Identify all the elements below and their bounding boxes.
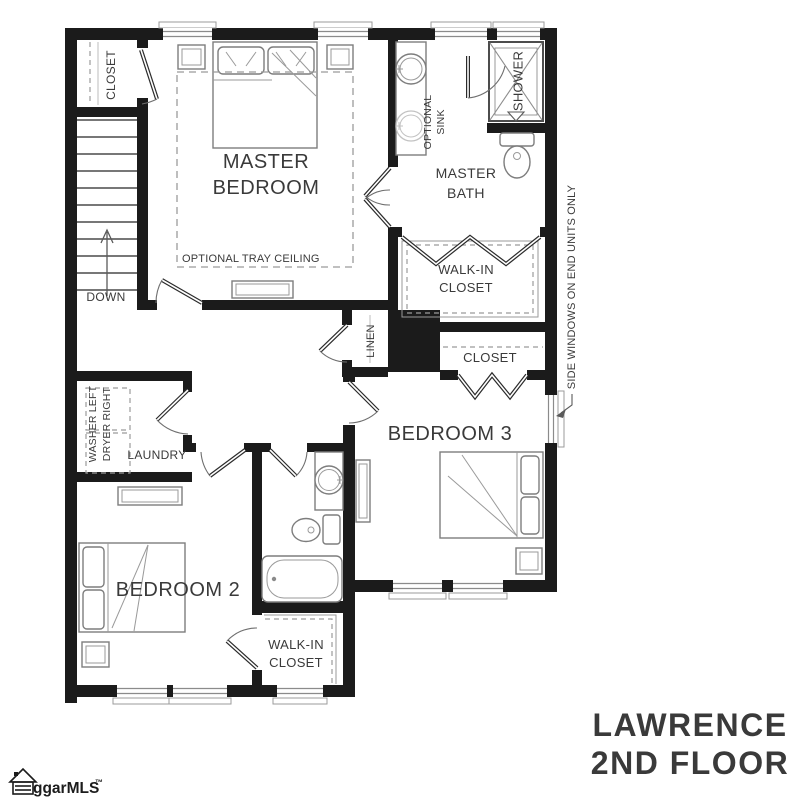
bedroom3-closet-label: CLOSET [463,350,517,365]
dryer-label: DRYER RIGHT [101,386,113,461]
logo-trademark: ™ [95,778,103,787]
side-window [545,391,564,447]
hall-closet [90,42,98,105]
window [431,22,491,40]
master-dresser [232,281,293,298]
master-bath-label-1: MASTER [436,165,497,181]
window [389,580,446,599]
window [169,685,231,704]
hall-closet-label: CLOSET [104,50,118,100]
bedroom2-label: BEDROOM 2 [116,579,241,601]
down-label: DOWN [86,290,125,304]
logo-text: ggarMLS [33,780,99,797]
master-wic-label-2: CLOSET [439,280,493,295]
bedroom2-nightstand [82,642,109,667]
washer-label: WASHER LEFT [87,385,99,462]
bath2-toilet [292,515,340,544]
window [449,580,507,599]
window [314,22,372,40]
bedroom2-dresser [118,487,182,505]
master-bed [178,42,353,148]
stairs-up-arrow [101,230,113,296]
plan-title-line2: 2ND FLOOR [591,745,789,781]
window [159,22,216,40]
optional-sink-label-2: SINK [435,109,447,134]
linen-label: LINEN [365,324,377,357]
laundry-label: LAUNDRY [127,448,186,462]
master-bedroom-label-1: MASTER [223,151,309,173]
mls-logo: ggarMLS ™ [10,769,103,797]
master-toilet [500,133,534,178]
bedroom3-label: BEDROOM 3 [388,423,513,445]
bedroom3-nightstand [516,548,542,574]
optional-sink-label-1: OPTIONAL [422,95,434,150]
window [493,22,544,40]
plan-title-line1: LAWRENCE [592,707,787,743]
window [113,685,171,704]
master-bath-label-2: BATH [447,185,485,201]
bedroom3-bed [440,452,543,538]
floor-plan-svg: MASTER BEDROOM OPTIONAL TRAY CEILING MAS… [0,0,800,800]
window [273,685,327,704]
side-windows-note: SIDE WINDOWS ON END UNITS ONLY [566,184,578,389]
bedroom3-dresser [356,460,370,522]
bedroom2-wic-label-1: WALK-IN [268,637,324,652]
bath2-vanity [315,452,343,510]
bath2-tub [262,556,342,602]
bedroom2-wic-label-2: CLOSET [269,655,323,670]
optional-tray-ceiling-label: OPTIONAL TRAY CEILING [182,253,320,265]
master-wic-label-1: WALK-IN [438,262,494,277]
floor-plan-page: MASTER BEDROOM OPTIONAL TRAY CEILING MAS… [0,0,800,800]
shower-label: SHOWER [510,51,525,111]
master-bedroom-label-2: BEDROOM [213,177,320,199]
staircase [77,120,137,296]
